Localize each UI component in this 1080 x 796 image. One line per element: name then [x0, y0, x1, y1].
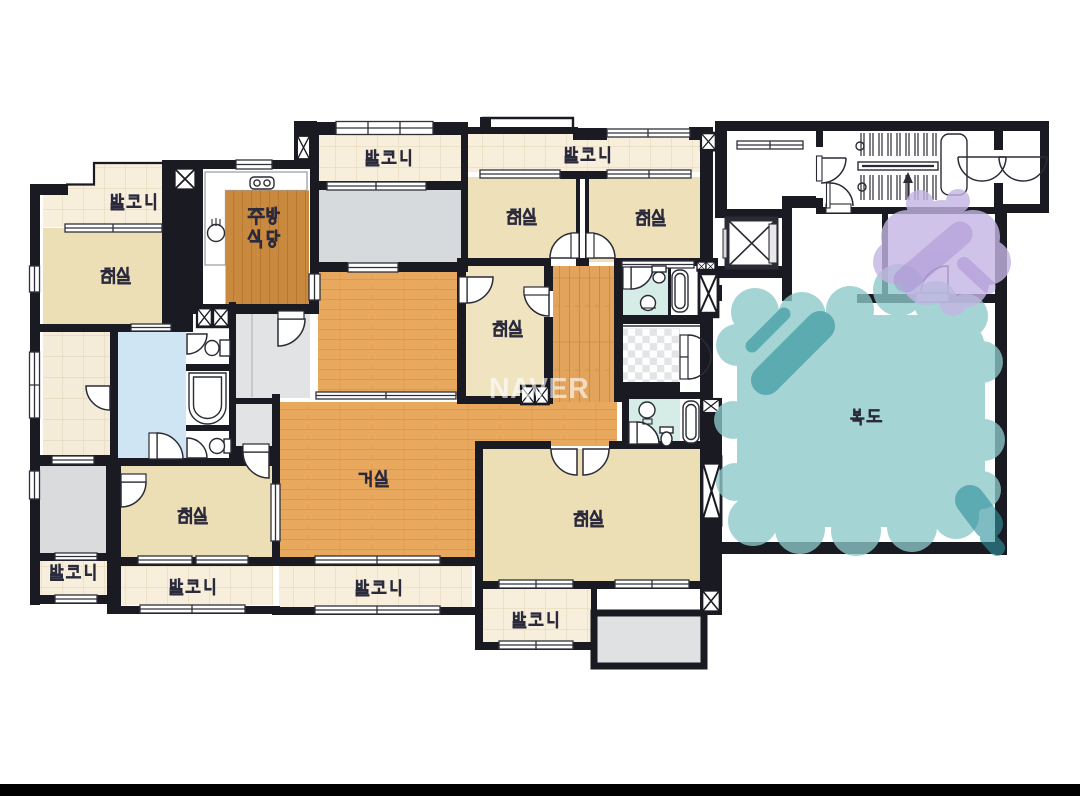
svg-text:NAVER: NAVER [489, 373, 589, 405]
